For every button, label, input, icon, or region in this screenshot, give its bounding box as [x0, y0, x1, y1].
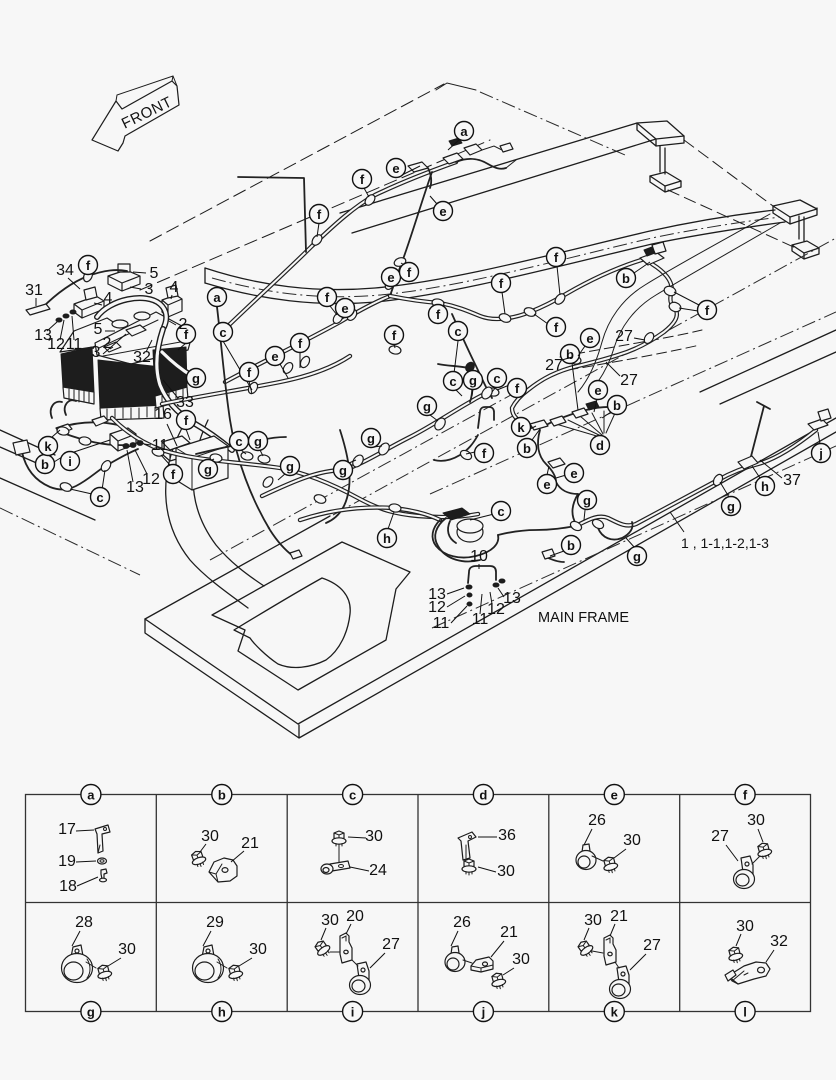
- svg-text:b: b: [613, 398, 621, 413]
- svg-text:d: d: [596, 438, 604, 453]
- svg-text:30: 30: [584, 912, 602, 929]
- svg-text:l: l: [743, 1005, 747, 1020]
- svg-text:j: j: [481, 1005, 486, 1020]
- svg-text:g: g: [339, 463, 347, 478]
- svg-text:a: a: [87, 788, 95, 803]
- svg-text:26: 26: [453, 914, 471, 931]
- svg-text:30: 30: [623, 832, 641, 849]
- svg-text:17: 17: [58, 821, 76, 838]
- svg-text:b: b: [218, 788, 226, 803]
- svg-text:a: a: [460, 124, 468, 139]
- svg-text:b: b: [622, 271, 630, 286]
- svg-text:k: k: [611, 1005, 619, 1020]
- svg-text:e: e: [594, 383, 601, 398]
- svg-text:h: h: [218, 1005, 226, 1020]
- svg-text:31: 31: [25, 282, 43, 299]
- svg-text:4: 4: [170, 279, 179, 296]
- svg-text:36: 36: [498, 827, 516, 844]
- svg-text:e: e: [570, 466, 577, 481]
- svg-text:e: e: [543, 477, 550, 492]
- svg-text:11: 11: [152, 437, 169, 454]
- svg-text:g: g: [254, 434, 262, 449]
- svg-text:c: c: [449, 374, 456, 389]
- svg-text:21: 21: [241, 835, 259, 852]
- svg-text:h: h: [383, 531, 391, 546]
- svg-text:20: 20: [346, 908, 364, 925]
- svg-text:30: 30: [512, 951, 530, 968]
- svg-text:32: 32: [770, 933, 788, 950]
- svg-text:12: 12: [47, 336, 65, 353]
- svg-text:13: 13: [503, 590, 521, 607]
- svg-text:27: 27: [615, 328, 633, 345]
- svg-text:g: g: [423, 399, 431, 414]
- svg-text:12: 12: [487, 601, 505, 618]
- svg-text:29: 29: [206, 914, 224, 931]
- svg-text:12: 12: [428, 599, 446, 616]
- svg-text:b: b: [567, 538, 575, 553]
- svg-text:f: f: [499, 276, 504, 291]
- svg-text:d: d: [479, 788, 487, 803]
- svg-text:c: c: [497, 504, 504, 519]
- svg-text:f: f: [298, 336, 303, 351]
- svg-text:e: e: [439, 204, 446, 219]
- svg-text:2: 2: [179, 316, 188, 333]
- svg-text:4: 4: [104, 290, 113, 307]
- svg-text:e: e: [387, 270, 394, 285]
- svg-text:f: f: [325, 290, 330, 305]
- svg-text:e: e: [611, 788, 618, 803]
- svg-text:i: i: [68, 454, 72, 469]
- svg-text:30: 30: [321, 912, 339, 929]
- svg-text:27: 27: [643, 937, 661, 954]
- svg-text:f: f: [743, 788, 748, 803]
- svg-text:f: f: [407, 265, 412, 280]
- svg-text:c: c: [219, 325, 226, 340]
- svg-text:g: g: [192, 371, 200, 386]
- svg-text:c: c: [493, 371, 500, 386]
- svg-text:e: e: [586, 331, 593, 346]
- svg-text:27: 27: [382, 936, 400, 953]
- svg-text:g: g: [367, 431, 375, 446]
- svg-text:5: 5: [150, 265, 159, 282]
- svg-text:2: 2: [103, 335, 112, 352]
- svg-text:f: f: [171, 467, 176, 482]
- svg-text:i: i: [351, 1005, 355, 1020]
- svg-text:b: b: [523, 441, 531, 456]
- svg-text:30: 30: [118, 941, 136, 958]
- svg-text:30: 30: [747, 812, 765, 829]
- svg-text:g: g: [87, 1005, 95, 1020]
- svg-text:k: k: [517, 420, 525, 435]
- svg-text:c: c: [96, 490, 103, 505]
- svg-text:21: 21: [610, 908, 628, 925]
- svg-text:g: g: [727, 499, 735, 514]
- svg-text:11: 11: [433, 615, 450, 632]
- svg-text:c: c: [235, 434, 242, 449]
- svg-text:16: 16: [154, 406, 172, 423]
- svg-text:26: 26: [588, 812, 606, 829]
- svg-text:19: 19: [58, 853, 76, 870]
- svg-text:f: f: [360, 172, 365, 187]
- svg-text:27: 27: [620, 372, 638, 389]
- svg-text:g: g: [633, 549, 641, 564]
- svg-text:g: g: [469, 373, 477, 388]
- svg-text:30: 30: [249, 941, 267, 958]
- svg-text:f: f: [515, 381, 520, 396]
- svg-text:k: k: [44, 439, 52, 454]
- svg-text:12: 12: [142, 471, 160, 488]
- svg-text:28: 28: [75, 914, 93, 931]
- svg-text:f: f: [86, 258, 91, 273]
- svg-text:f: f: [482, 446, 487, 461]
- svg-text:c: c: [349, 788, 356, 803]
- svg-text:e: e: [392, 161, 399, 176]
- svg-text:3: 3: [92, 344, 101, 361]
- svg-text:f: f: [247, 365, 252, 380]
- svg-text:27: 27: [545, 357, 563, 374]
- svg-text:g: g: [583, 493, 591, 508]
- svg-text:1 , 1-1,1-2,1-3: 1 , 1-1,1-2,1-3: [681, 535, 769, 551]
- svg-text:MAIN FRAME: MAIN FRAME: [538, 610, 629, 626]
- svg-text:f: f: [554, 320, 559, 335]
- svg-text:30: 30: [365, 828, 383, 845]
- svg-text:21: 21: [500, 924, 518, 941]
- svg-text:33: 33: [176, 394, 194, 411]
- svg-text:e: e: [341, 301, 348, 316]
- svg-text:f: f: [705, 303, 710, 318]
- svg-text:e: e: [271, 349, 278, 364]
- svg-text:37: 37: [783, 472, 801, 489]
- svg-text:a: a: [213, 290, 221, 305]
- svg-text:f: f: [392, 328, 397, 343]
- svg-text:g: g: [286, 459, 294, 474]
- svg-text:34: 34: [56, 262, 74, 279]
- svg-text:f: f: [184, 413, 189, 428]
- svg-text:32: 32: [133, 349, 151, 366]
- svg-text:b: b: [566, 347, 574, 362]
- svg-text:f: f: [436, 307, 441, 322]
- svg-text:b: b: [41, 457, 49, 472]
- svg-text:18: 18: [59, 878, 77, 895]
- svg-text:27: 27: [711, 828, 729, 845]
- svg-text:13: 13: [126, 479, 144, 496]
- svg-text:30: 30: [736, 918, 754, 935]
- svg-text:30: 30: [497, 863, 515, 880]
- svg-text:5: 5: [94, 321, 103, 338]
- svg-text:f: f: [317, 207, 322, 222]
- svg-text:24: 24: [369, 862, 387, 879]
- svg-text:10: 10: [470, 548, 488, 565]
- svg-text:h: h: [761, 479, 769, 494]
- svg-text:3: 3: [145, 281, 154, 298]
- svg-text:30: 30: [201, 828, 219, 845]
- svg-text:c: c: [454, 324, 461, 339]
- svg-text:f: f: [554, 250, 559, 265]
- svg-text:g: g: [204, 462, 212, 477]
- svg-text:j: j: [818, 446, 823, 461]
